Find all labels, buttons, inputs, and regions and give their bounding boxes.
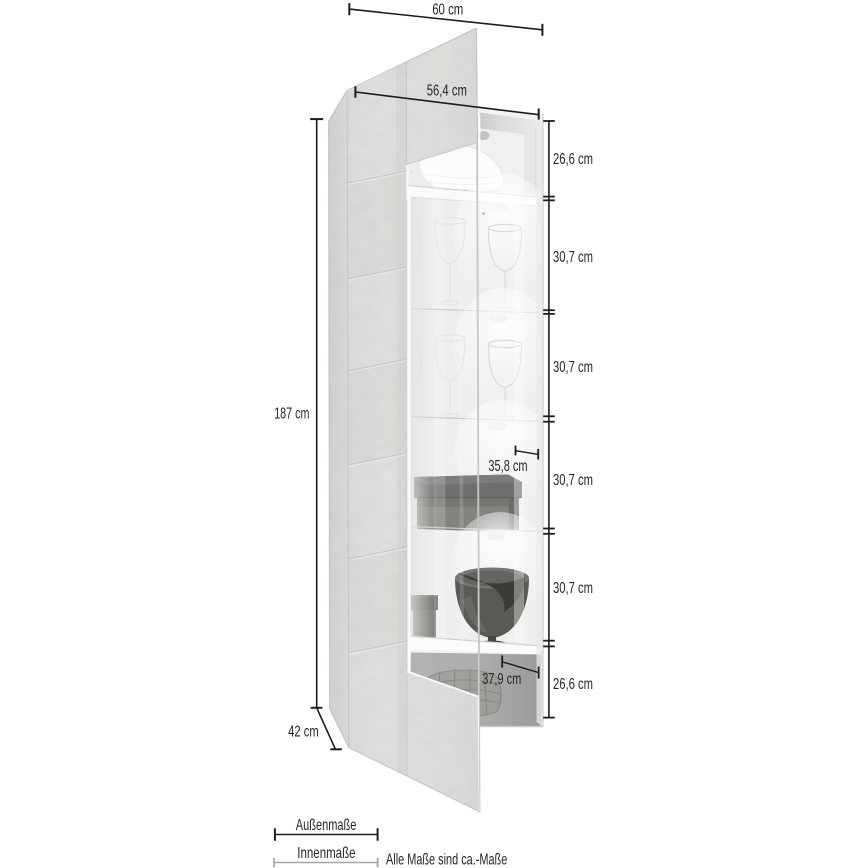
svg-text:Alle Maße sind ca.-Maße: Alle Maße sind ca.-Maße: [386, 852, 507, 868]
svg-text:56,4 cm: 56,4 cm: [427, 82, 467, 99]
svg-text:26,6 cm: 26,6 cm: [553, 151, 593, 168]
svg-text:37,9 cm: 37,9 cm: [482, 671, 521, 688]
svg-text:42 cm: 42 cm: [288, 724, 319, 741]
svg-text:26,6 cm: 26,6 cm: [553, 676, 593, 693]
svg-text:30,7 cm: 30,7 cm: [553, 472, 593, 489]
svg-text:Innenmaße: Innenmaße: [297, 845, 355, 862]
svg-text:35,8 cm: 35,8 cm: [488, 458, 527, 475]
svg-text:Außenmaße: Außenmaße: [296, 817, 357, 834]
svg-text:60 cm: 60 cm: [432, 1, 463, 18]
svg-text:30,7 cm: 30,7 cm: [553, 580, 593, 597]
svg-text:187 cm: 187 cm: [274, 405, 309, 422]
svg-text:30,7 cm: 30,7 cm: [553, 249, 593, 266]
svg-text:30,7 cm: 30,7 cm: [553, 359, 593, 376]
